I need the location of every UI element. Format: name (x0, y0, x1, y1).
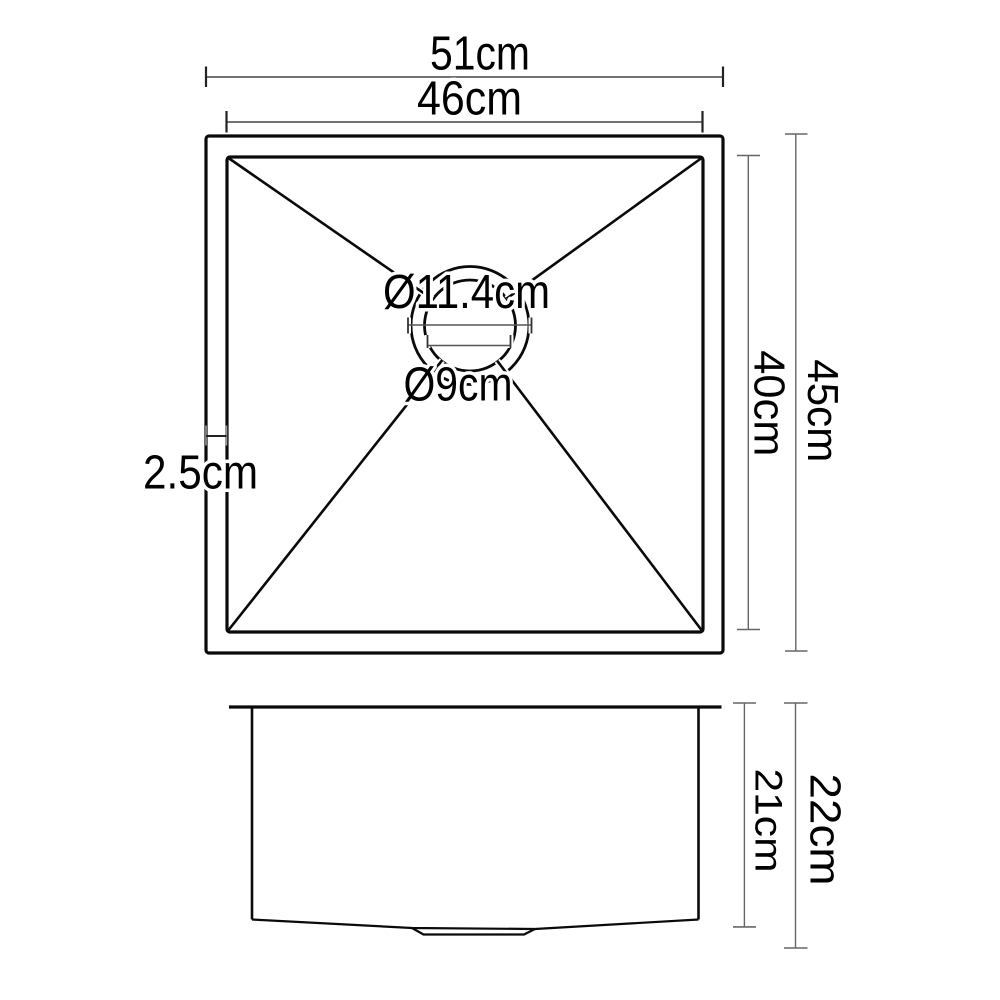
svg-text:Ø11.4cm: Ø11.4cm (383, 266, 550, 319)
svg-text:45cm: 45cm (798, 359, 846, 462)
svg-text:22cm: 22cm (801, 774, 849, 886)
svg-text:2.5cm: 2.5cm (143, 447, 258, 500)
svg-text:21cm: 21cm (747, 769, 790, 873)
svg-text:46cm: 46cm (417, 73, 522, 126)
svg-text:Ø9cm: Ø9cm (404, 359, 513, 412)
svg-text:40cm: 40cm (745, 350, 793, 456)
